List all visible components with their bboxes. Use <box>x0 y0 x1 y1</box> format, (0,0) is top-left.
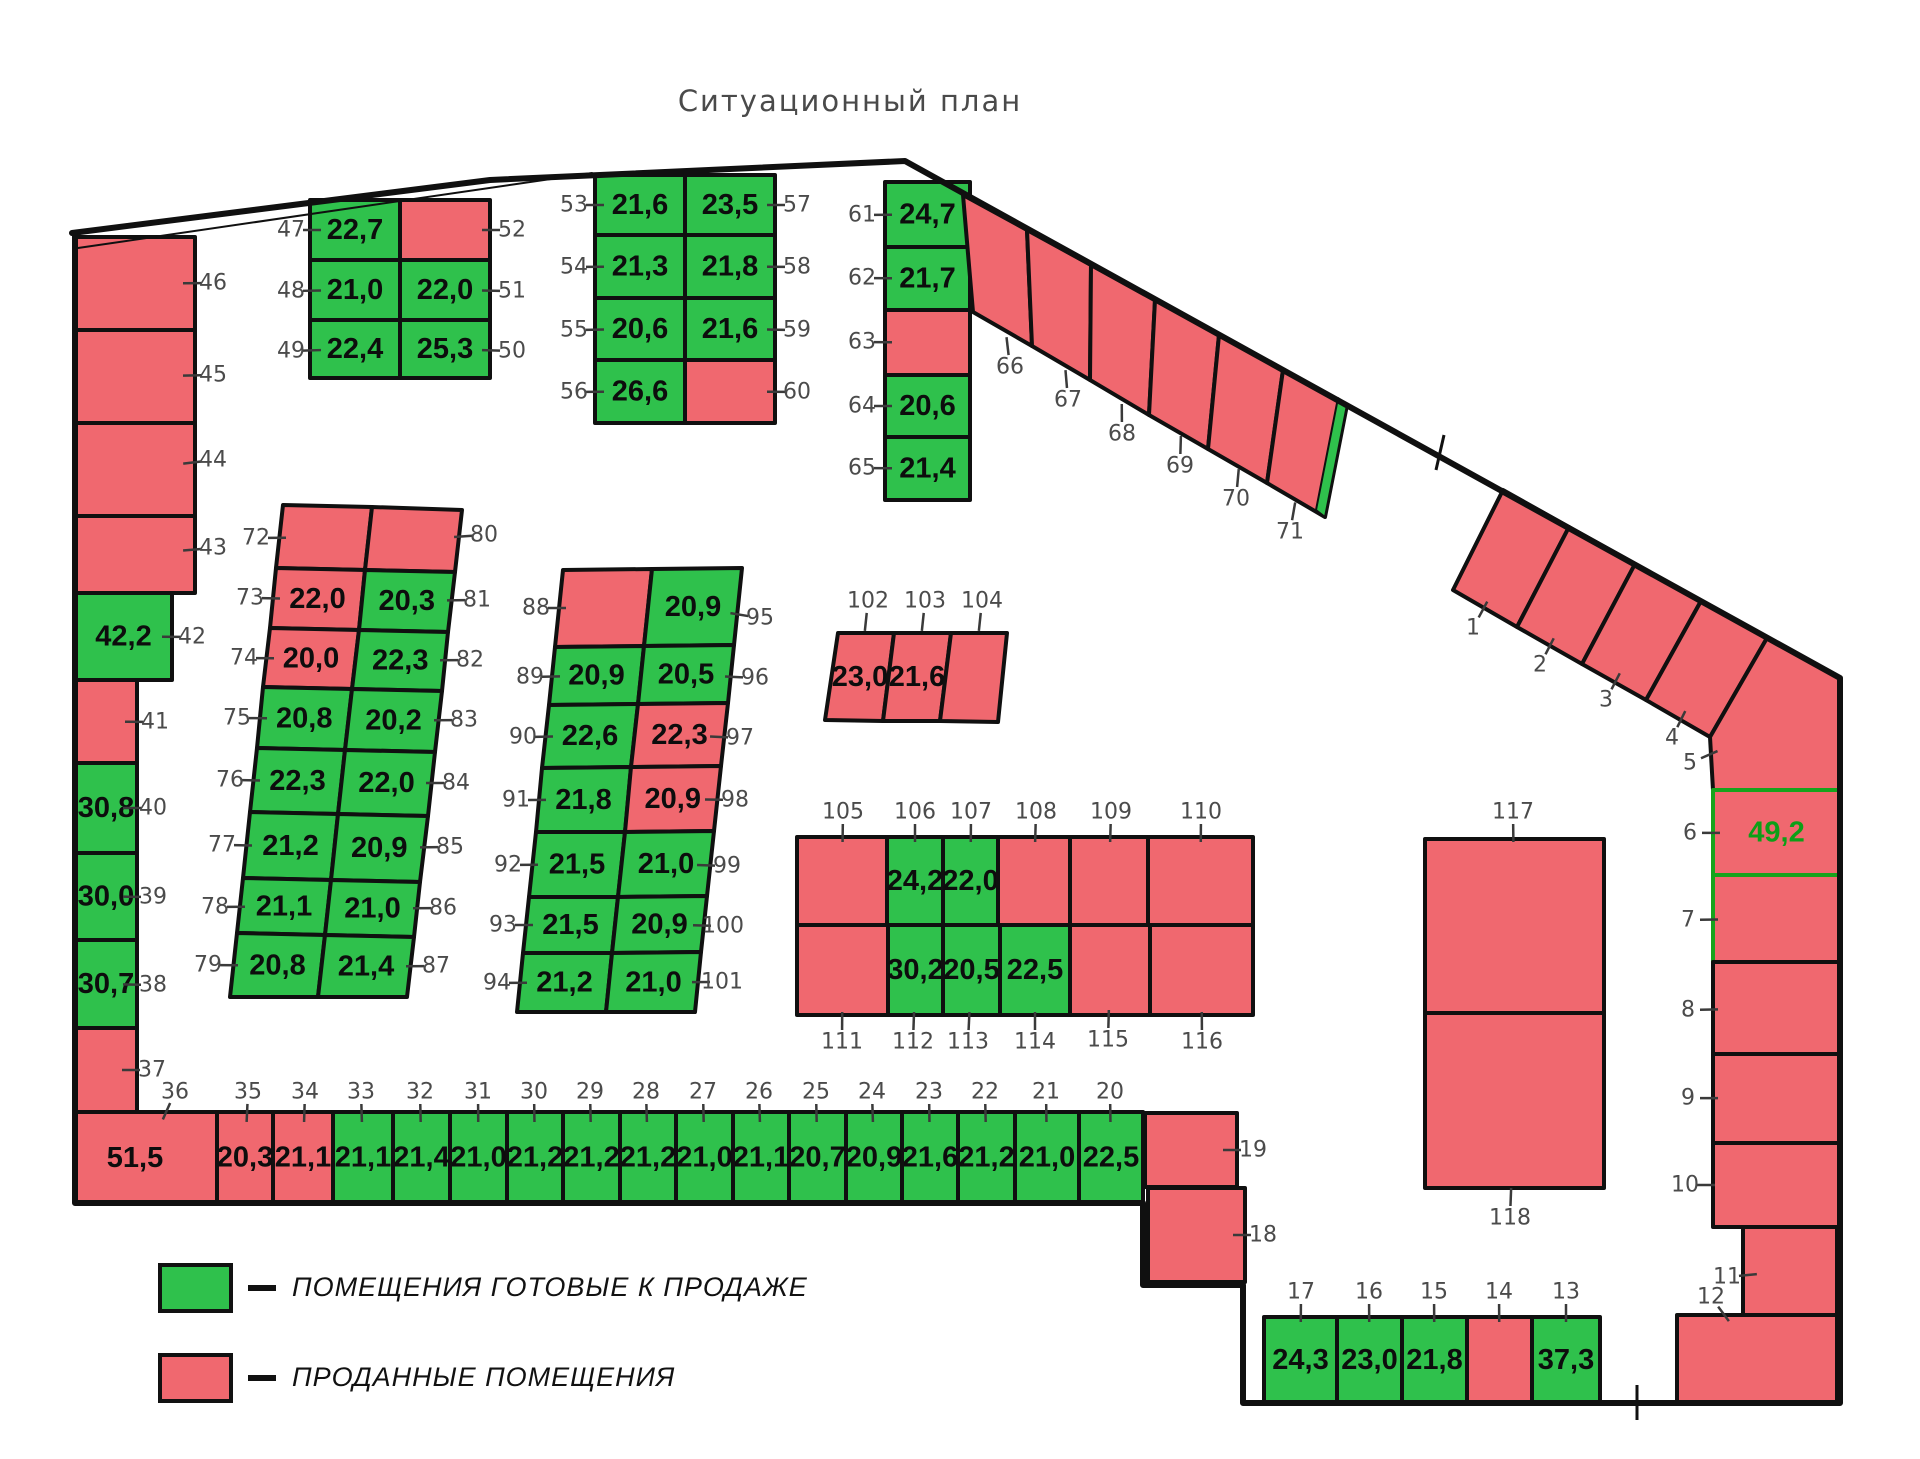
unit-24-tick <box>872 1104 873 1122</box>
legend-dash-free <box>248 1285 276 1291</box>
unit-51-number: 51 <box>498 279 526 304</box>
unit-38[interactable]: 30,738 <box>75 940 167 1028</box>
unit-6-area: 49,2 <box>1748 817 1804 849</box>
unit-21-area: 21,0 <box>1019 1142 1075 1174</box>
unit-76-area: 22,3 <box>269 765 325 797</box>
unit-62-number: 62 <box>848 266 876 291</box>
unit-88-number: 88 <box>522 596 550 621</box>
unit-96[interactable]: 20,596 <box>638 645 769 704</box>
unit-84[interactable]: 22,084 <box>338 750 470 816</box>
unit-109-shape[interactable] <box>1070 837 1148 925</box>
unit-10[interactable]: 10 <box>1671 1143 1840 1227</box>
unit-81[interactable]: 20,381 <box>359 570 491 632</box>
unit-105[interactable]: 105 <box>797 800 887 926</box>
unit-83-area: 20,2 <box>365 705 421 737</box>
unit-68-shape[interactable] <box>1090 265 1155 415</box>
unit-14-shape[interactable] <box>1467 1317 1532 1403</box>
unit-44[interactable]: 44 <box>75 423 227 516</box>
unit-11-shape[interactable] <box>1743 1227 1837 1315</box>
unit-115-tick <box>1108 1010 1109 1028</box>
situational-plan-page: Ситуационный план 1234549,2678910111237,… <box>0 0 1920 1459</box>
unit-95-number: 95 <box>746 606 774 631</box>
unit-83-number: 83 <box>450 708 478 733</box>
unit-1-number: 1 <box>1466 616 1480 641</box>
unit-63[interactable]: 63 <box>848 310 970 375</box>
legend-label-sold: ПРОДАННЫЕ ПОМЕЩЕНИЯ <box>292 1362 675 1393</box>
unit-112[interactable]: 30,2112 <box>887 925 943 1055</box>
unit-110-number: 110 <box>1180 800 1222 825</box>
unit-104-shape[interactable] <box>940 633 1007 722</box>
unit-36-area: 51,5 <box>107 1142 163 1174</box>
unit-8-number: 8 <box>1681 998 1695 1023</box>
unit-73-number: 73 <box>236 586 264 611</box>
unit-50-area: 25,3 <box>417 333 473 365</box>
unit-49-tick <box>303 350 321 351</box>
unit-110[interactable]: 110 <box>1148 800 1253 926</box>
unit-17-number: 17 <box>1287 1280 1315 1305</box>
unit-73[interactable]: 22,073 <box>236 568 365 630</box>
unit-109-number: 109 <box>1090 800 1132 825</box>
unit-63-shape[interactable] <box>885 310 970 375</box>
unit-52-shape[interactable] <box>400 200 490 260</box>
unit-85[interactable]: 20,985 <box>331 814 464 882</box>
unit-28[interactable]: 21,228 <box>620 1080 676 1204</box>
unit-60-shape[interactable] <box>685 360 775 423</box>
unit-79-area: 20,8 <box>249 950 305 982</box>
unit-114-area: 22,5 <box>1007 954 1063 986</box>
unit-60-number: 60 <box>783 380 811 405</box>
unit-43-shape[interactable] <box>75 516 195 593</box>
unit-89-area: 20,9 <box>568 660 624 692</box>
unit-60[interactable]: 60 <box>685 360 811 423</box>
unit-104[interactable]: 104 <box>940 589 1007 723</box>
unit-56-area: 26,6 <box>612 376 668 408</box>
unit-76-number: 76 <box>216 768 244 793</box>
unit-103-tick <box>922 613 924 631</box>
unit-80-number: 80 <box>470 523 498 548</box>
unit-40-number: 40 <box>139 796 167 821</box>
unit-30-area: 21,2 <box>507 1142 563 1174</box>
unit-23[interactable]: 21,623 <box>902 1080 958 1204</box>
unit-34-number: 34 <box>291 1080 319 1105</box>
unit-10-number: 10 <box>1671 1173 1699 1198</box>
unit-17-area: 24,3 <box>1272 1344 1328 1376</box>
unit-46-shape[interactable] <box>75 237 195 330</box>
unit-9-number: 9 <box>1681 1086 1695 1111</box>
unit-112-area: 30,2 <box>887 954 943 986</box>
unit-54[interactable]: 21,354 <box>560 235 685 298</box>
unit-85-number: 85 <box>436 835 464 860</box>
unit-46-number: 46 <box>199 271 227 296</box>
unit-10-shape[interactable] <box>1713 1143 1840 1227</box>
unit-26[interactable]: 21,126 <box>733 1080 789 1204</box>
unit-43[interactable]: 43 <box>75 516 227 593</box>
unit-36-number: 36 <box>161 1080 189 1105</box>
unit-12-shape[interactable] <box>1677 1315 1837 1403</box>
unit-102-tick <box>865 613 867 631</box>
unit-57[interactable]: 23,557 <box>685 175 811 235</box>
unit-82[interactable]: 22,382 <box>352 630 484 691</box>
unit-42-number: 42 <box>178 625 206 650</box>
unit-33-number: 33 <box>347 1080 375 1105</box>
unit-113-area: 20,5 <box>943 954 999 986</box>
unit-117-number: 117 <box>1492 800 1534 825</box>
unit-13-number: 13 <box>1552 1280 1580 1305</box>
unit-56[interactable]: 26,656 <box>560 360 685 423</box>
unit-58[interactable]: 21,858 <box>685 235 811 298</box>
unit-13-area: 37,3 <box>1538 1344 1594 1376</box>
unit-79[interactable]: 20,879 <box>194 933 325 997</box>
unit-90[interactable]: 22,690 <box>509 704 638 768</box>
unit-87-area: 21,4 <box>338 951 394 983</box>
unit-61[interactable]: 24,761 <box>848 182 970 247</box>
unit-39[interactable]: 30,039 <box>75 853 167 940</box>
unit-117-shape[interactable] <box>1425 839 1604 1013</box>
unit-94-number: 94 <box>483 971 511 996</box>
unit-32[interactable]: 21,432 <box>393 1080 450 1204</box>
unit-41[interactable]: 41 <box>75 680 169 763</box>
unit-86[interactable]: 21,086 <box>325 880 457 937</box>
unit-96-area: 20,5 <box>658 659 714 691</box>
unit-65[interactable]: 21,465 <box>848 437 970 500</box>
unit-32-number: 32 <box>406 1080 434 1105</box>
unit-37-number: 37 <box>138 1058 166 1083</box>
unit-41-number: 41 <box>141 710 169 735</box>
unit-16[interactable]: 23,016 <box>1337 1280 1402 1404</box>
unit-102-area: 23,0 <box>832 661 888 693</box>
unit-29[interactable]: 21,229 <box>563 1080 620 1204</box>
unit-20-area: 22,5 <box>1083 1142 1139 1174</box>
unit-46[interactable]: 46 <box>75 237 227 330</box>
unit-47-area: 22,7 <box>327 214 383 246</box>
unit-23-number: 23 <box>915 1080 943 1105</box>
unit-89-number: 89 <box>516 665 544 690</box>
unit-22-number: 22 <box>971 1080 999 1105</box>
unit-45[interactable]: 45 <box>75 330 227 423</box>
unit-21-number: 21 <box>1032 1080 1060 1105</box>
unit-106[interactable]: 24,2106 <box>887 800 943 926</box>
unit-3-number: 3 <box>1599 688 1613 713</box>
unit-80-shape[interactable] <box>365 507 462 572</box>
unit-84-number: 84 <box>442 771 470 796</box>
unit-34[interactable]: 21,134 <box>273 1080 333 1204</box>
unit-48-area: 21,0 <box>327 274 383 306</box>
unit-93-area: 21,5 <box>542 909 598 941</box>
unit-64-area: 20,6 <box>899 390 955 422</box>
unit-7[interactable]: 7 <box>1681 875 1840 962</box>
unit-66-tick <box>1007 337 1009 355</box>
unit-105-shape[interactable] <box>797 837 887 925</box>
unit-69-number: 69 <box>1166 454 1194 479</box>
unit-31[interactable]: 21,031 <box>450 1080 507 1204</box>
unit-74-area: 20,0 <box>283 643 339 675</box>
unit-72-number: 72 <box>242 526 270 551</box>
unit-27-number: 27 <box>689 1080 717 1105</box>
unit-33[interactable]: 21,133 <box>333 1080 393 1204</box>
unit-54-area: 21,3 <box>612 251 668 283</box>
unit-78-area: 21,1 <box>256 891 312 923</box>
unit-116[interactable]: 116 <box>1150 925 1253 1055</box>
unit-116-shape[interactable] <box>1150 925 1253 1015</box>
unit-95-area: 20,9 <box>665 591 721 623</box>
unit-110-shape[interactable] <box>1148 837 1253 925</box>
unit-71-tick <box>1292 502 1295 520</box>
unit-24-area: 20,9 <box>846 1142 902 1174</box>
unit-51[interactable]: 22,051 <box>400 260 526 320</box>
unit-89[interactable]: 20,989 <box>516 646 644 705</box>
unit-84-area: 22,0 <box>358 767 414 799</box>
unit-29-number: 29 <box>576 1080 604 1105</box>
unit-24[interactable]: 20,924 <box>846 1080 902 1204</box>
unit-28-tick <box>646 1104 647 1122</box>
unit-66-number: 66 <box>996 355 1024 380</box>
unit-64-number: 64 <box>848 394 876 419</box>
unit-94[interactable]: 21,294 <box>483 953 612 1012</box>
unit-21[interactable]: 21,021 <box>1015 1080 1079 1204</box>
unit-99[interactable]: 21,099 <box>618 831 741 897</box>
unit-33-area: 21,1 <box>335 1142 391 1174</box>
unit-81-number: 81 <box>463 588 491 613</box>
unit-59-area: 21,6 <box>702 313 758 345</box>
unit-67-number: 67 <box>1054 388 1082 413</box>
unit-8-shape[interactable] <box>1713 962 1840 1054</box>
unit-83[interactable]: 20,283 <box>345 689 478 752</box>
unit-40[interactable]: 30,840 <box>75 763 167 853</box>
unit-102-number: 102 <box>847 589 889 614</box>
unit-108-shape[interactable] <box>998 837 1070 925</box>
unit-7-shape[interactable] <box>1713 875 1840 962</box>
unit-38-number: 38 <box>139 973 167 998</box>
unit-109-tick <box>1110 824 1111 842</box>
unit-57-area: 23,5 <box>702 189 758 221</box>
unit-113[interactable]: 20,5113 <box>943 925 1000 1055</box>
legend-swatch-sold <box>158 1353 233 1403</box>
unit-25[interactable]: 20,725 <box>789 1080 846 1204</box>
unit-30[interactable]: 21,230 <box>507 1080 563 1204</box>
unit-92-number: 92 <box>494 853 522 878</box>
unit-113-tick <box>969 1012 970 1030</box>
unit-22-area: 21,2 <box>958 1142 1014 1174</box>
unit-118-tick <box>1510 1188 1511 1206</box>
unit-18[interactable]: 18 <box>1148 1188 1277 1282</box>
unit-9[interactable]: 9 <box>1681 1054 1840 1143</box>
unit-44-shape[interactable] <box>75 423 195 516</box>
unit-25-area: 20,7 <box>789 1142 845 1174</box>
unit-62[interactable]: 21,762 <box>848 247 970 310</box>
unit-109[interactable]: 109 <box>1070 800 1148 926</box>
unit-107-number: 107 <box>950 800 992 825</box>
unit-66-shape[interactable] <box>963 195 1032 346</box>
unit-42[interactable]: 42,242 <box>75 593 206 680</box>
unit-32-area: 21,4 <box>393 1142 449 1174</box>
unit-65-number: 65 <box>848 456 876 481</box>
unit-91-number: 91 <box>502 788 530 813</box>
unit-88[interactable]: 88 <box>522 569 652 647</box>
unit-64[interactable]: 20,664 <box>848 375 970 437</box>
unit-48[interactable]: 21,048 <box>277 260 400 320</box>
unit-71-number: 71 <box>1276 520 1304 545</box>
unit-100-number: 100 <box>702 914 744 939</box>
unit-28-number: 28 <box>632 1080 660 1105</box>
unit-67-shape[interactable] <box>1027 230 1091 380</box>
unit-78-number: 78 <box>201 895 229 920</box>
unit-20[interactable]: 22,520 <box>1079 1080 1143 1204</box>
unit-27[interactable]: 21,027 <box>676 1080 733 1204</box>
unit-96-number: 96 <box>741 666 769 691</box>
unit-88-shape[interactable] <box>555 569 652 647</box>
unit-68-number: 68 <box>1108 422 1136 447</box>
unit-114[interactable]: 22,5114 <box>1000 925 1070 1055</box>
unit-54-number: 54 <box>560 255 588 280</box>
unit-111[interactable]: 111 <box>797 925 888 1055</box>
unit-101-area: 21,0 <box>625 966 681 998</box>
unit-11-tick <box>1739 1274 1757 1276</box>
unit-53[interactable]: 21,653 <box>560 175 685 235</box>
unit-70-number: 70 <box>1222 487 1250 512</box>
unit-85-area: 20,9 <box>351 832 407 864</box>
unit-14[interactable]: 14 <box>1467 1280 1532 1404</box>
unit-74-number: 74 <box>230 646 258 671</box>
unit-115[interactable]: 115 <box>1070 925 1150 1053</box>
unit-70-tick <box>1237 469 1239 487</box>
legend-swatch-free <box>158 1263 233 1313</box>
unit-15[interactable]: 21,815 <box>1402 1280 1467 1404</box>
unit-37[interactable]: 37 <box>75 1028 166 1112</box>
unit-26-number: 26 <box>745 1080 773 1105</box>
unit-17[interactable]: 24,317 <box>1264 1280 1337 1404</box>
unit-27-area: 21,0 <box>676 1142 732 1174</box>
unit-31-area: 21,0 <box>450 1142 506 1174</box>
unit-43-number: 43 <box>199 536 227 561</box>
unit-77[interactable]: 21,277 <box>208 812 338 880</box>
unit-87-number: 87 <box>422 954 450 979</box>
unit-26-area: 21,1 <box>733 1142 789 1174</box>
unit-29-area: 21,2 <box>563 1142 619 1174</box>
unit-87[interactable]: 21,487 <box>318 935 450 997</box>
unit-35-number: 35 <box>234 1080 262 1105</box>
unit-58-number: 58 <box>783 255 811 280</box>
unit-77-number: 77 <box>208 833 236 858</box>
unit-59[interactable]: 21,659 <box>685 298 811 360</box>
unit-31-number: 31 <box>464 1080 492 1105</box>
unit-30-number: 30 <box>520 1080 548 1105</box>
unit-26-tick <box>759 1104 760 1122</box>
unit-55[interactable]: 20,655 <box>560 298 685 360</box>
unit-50[interactable]: 25,350 <box>400 320 526 378</box>
unit-111-shape[interactable] <box>797 925 888 1015</box>
unit-112-number: 112 <box>892 1030 934 1055</box>
unit-112-tick <box>913 1012 914 1030</box>
unit-39-number: 39 <box>139 885 167 910</box>
unit-76[interactable]: 22,376 <box>216 748 345 814</box>
unit-104-number: 104 <box>961 589 1003 614</box>
unit-55-area: 20,6 <box>612 313 668 345</box>
unit-22[interactable]: 21,222 <box>958 1080 1015 1204</box>
unit-53-area: 21,6 <box>612 189 668 221</box>
unit-93[interactable]: 21,593 <box>489 897 618 953</box>
unit-6[interactable]: 49,26 <box>1683 790 1840 875</box>
unit-53-number: 53 <box>560 193 588 218</box>
unit-90-area: 22,6 <box>562 720 618 752</box>
unit-19[interactable]: 19 <box>1145 1113 1267 1187</box>
unit-118[interactable]: 118 <box>1425 1013 1604 1231</box>
unit-14-number: 14 <box>1485 1280 1513 1305</box>
unit-24-number: 24 <box>858 1080 886 1105</box>
unit-52-number: 52 <box>498 218 526 243</box>
unit-63-number: 63 <box>848 330 876 355</box>
unit-13[interactable]: 37,313 <box>1532 1280 1600 1404</box>
unit-74[interactable]: 20,074 <box>230 628 359 689</box>
unit-115-number: 115 <box>1087 1028 1129 1053</box>
unit-97[interactable]: 22,397 <box>631 703 754 767</box>
unit-107[interactable]: 22,0107 <box>942 800 998 926</box>
unit-16-number: 16 <box>1355 1280 1383 1305</box>
unit-18-shape[interactable] <box>1148 1188 1245 1282</box>
unit-113-number: 113 <box>947 1030 989 1055</box>
unit-103-area: 21,6 <box>889 661 945 693</box>
unit-9-shape[interactable] <box>1713 1054 1840 1143</box>
unit-34-area: 21,1 <box>275 1142 331 1174</box>
unit-58-area: 21,8 <box>702 251 758 283</box>
unit-25-number: 25 <box>802 1080 830 1105</box>
unit-52[interactable]: 52 <box>400 200 526 260</box>
unit-81-area: 20,3 <box>379 585 435 617</box>
unit-7-number: 7 <box>1681 908 1695 933</box>
unit-93-number: 93 <box>489 913 517 938</box>
unit-104-tick <box>979 613 981 631</box>
unit-90-number: 90 <box>509 725 537 750</box>
unit-2-number: 2 <box>1533 653 1547 678</box>
unit-15-number: 15 <box>1420 1280 1448 1305</box>
unit-72[interactable]: 72 <box>242 505 372 570</box>
unit-11[interactable]: 11 <box>1713 1227 1837 1315</box>
unit-75[interactable]: 20,875 <box>223 687 352 750</box>
unit-35-tick <box>247 1104 248 1122</box>
unit-78[interactable]: 21,178 <box>201 878 331 935</box>
unit-99-area: 21,0 <box>638 848 694 880</box>
unit-49[interactable]: 22,449 <box>277 320 400 378</box>
unit-55-number: 55 <box>560 318 588 343</box>
unit-80[interactable]: 80 <box>365 507 498 572</box>
unit-118-shape[interactable] <box>1425 1013 1604 1188</box>
unit-108[interactable]: 108 <box>998 800 1070 926</box>
unit-106-number: 106 <box>894 800 936 825</box>
unit-45-shape[interactable] <box>75 330 195 423</box>
unit-61-area: 24,7 <box>899 199 955 231</box>
unit-117[interactable]: 117 <box>1425 800 1604 1014</box>
unit-86-area: 21,0 <box>344 893 400 925</box>
unit-92[interactable]: 21,592 <box>494 832 625 897</box>
unit-98[interactable]: 20,998 <box>625 766 749 832</box>
unit-100[interactable]: 20,9100 <box>612 896 744 953</box>
unit-69-tick <box>1180 436 1181 454</box>
unit-115-shape[interactable] <box>1070 925 1150 1015</box>
unit-98-area: 20,9 <box>645 783 701 815</box>
unit-51-area: 22,0 <box>417 274 473 306</box>
unit-72-shape[interactable] <box>276 505 372 570</box>
legend-dash-sold <box>248 1375 276 1381</box>
unit-86-number: 86 <box>429 896 457 921</box>
unit-91[interactable]: 21,891 <box>502 767 631 832</box>
unit-91-area: 21,8 <box>555 784 611 816</box>
unit-101[interactable]: 21,0101 <box>606 952 743 1012</box>
unit-101-number: 101 <box>701 970 743 995</box>
unit-95[interactable]: 20,995 <box>644 568 774 646</box>
unit-8[interactable]: 8 <box>1681 962 1840 1054</box>
unit-116-number: 116 <box>1181 1030 1223 1055</box>
unit-33-tick <box>361 1104 362 1122</box>
unit-35[interactable]: 20,335 <box>217 1080 273 1204</box>
